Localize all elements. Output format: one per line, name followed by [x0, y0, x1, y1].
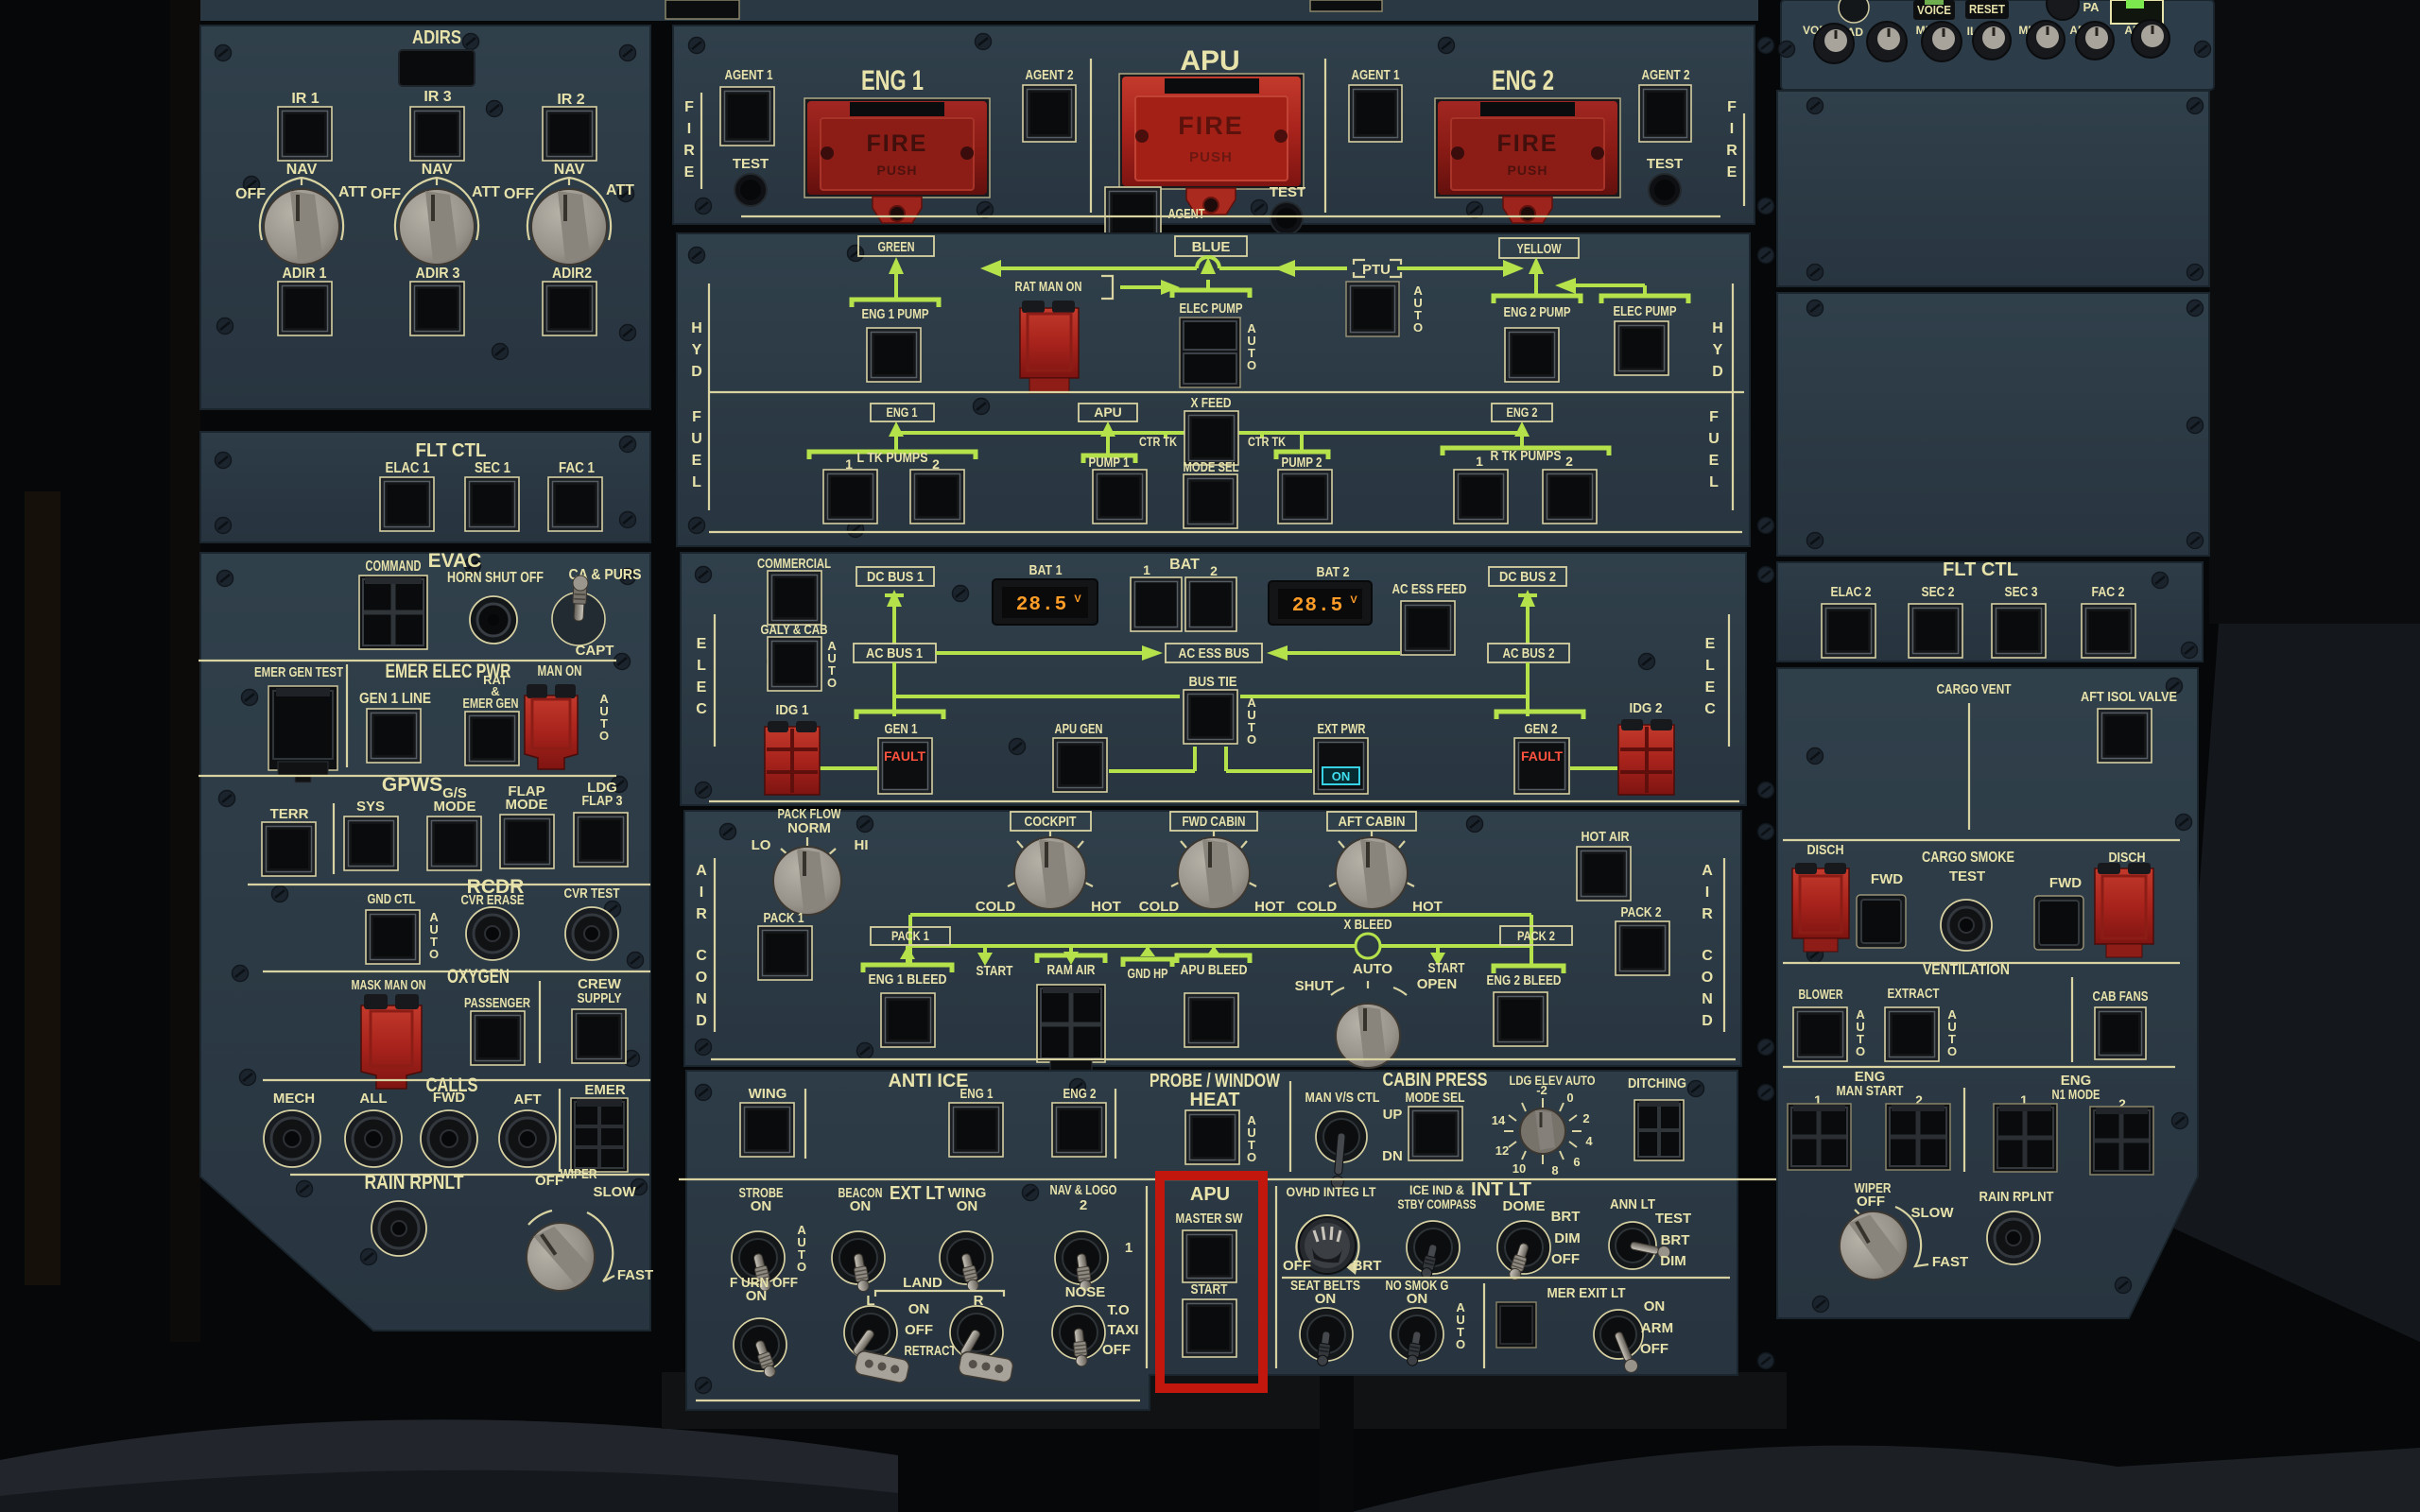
svg-text:ADIR 1: ADIR 1 [283, 266, 327, 282]
svg-text:EMER: EMER [584, 1082, 626, 1098]
svg-text:U: U [691, 431, 702, 447]
svg-text:OPEN: OPEN [1417, 976, 1458, 992]
svg-text:FAULT: FAULT [1521, 748, 1564, 764]
svg-text:L: L [697, 658, 706, 674]
svg-text:FWD: FWD [433, 1090, 465, 1106]
svg-text:IDG 2: IDG 2 [1630, 700, 1663, 716]
svg-text:V: V [1350, 594, 1357, 606]
svg-text:OFF: OFF [535, 1173, 563, 1189]
svg-text:STBY COMPASS: STBY COMPASS [1398, 1196, 1477, 1211]
svg-text:IR 3: IR 3 [423, 89, 451, 105]
svg-text:OFF: OFF [371, 186, 401, 202]
svg-text:NAV & LOGO: NAV & LOGO [1050, 1182, 1117, 1198]
svg-text:PUMP 1: PUMP 1 [1089, 455, 1130, 471]
svg-text:MECH: MECH [273, 1091, 315, 1107]
svg-text:TEST: TEST [1270, 184, 1305, 200]
svg-text:PTU: PTU [1362, 262, 1391, 278]
svg-text:VENTILATION: VENTILATION [1923, 962, 2010, 978]
svg-text:START: START [1191, 1281, 1228, 1297]
svg-text:PUMP 2: PUMP 2 [1282, 455, 1322, 471]
svg-text:LO: LO [752, 837, 771, 853]
svg-text:AFT: AFT [513, 1091, 541, 1108]
svg-text:INT LT: INT LT [1471, 1179, 1531, 1200]
svg-text:DISCH: DISCH [1807, 842, 1844, 858]
svg-text:CAB FANS: CAB FANS [2093, 988, 2149, 1005]
svg-text:FLT CTL: FLT CTL [1943, 559, 2018, 580]
svg-text:LAND: LAND [903, 1275, 942, 1291]
svg-text:C: C [1702, 948, 1713, 964]
svg-text:BAT 1: BAT 1 [1029, 562, 1063, 578]
svg-text:OFF: OFF [235, 186, 266, 202]
svg-text:HORN SHUT OFF: HORN SHUT OFF [447, 570, 544, 586]
svg-text:ADIRS: ADIRS [412, 27, 461, 48]
svg-text:ENG 2 PUMP: ENG 2 PUMP [1504, 304, 1571, 320]
svg-text:NAV: NAV [422, 162, 453, 178]
svg-text:RAT MAN ON: RAT MAN ON [1015, 279, 1082, 295]
svg-text:COMMAND: COMMAND [366, 558, 422, 575]
svg-text:OFF: OFF [1283, 1258, 1311, 1274]
svg-text:DITCHING: DITCHING [1628, 1075, 1686, 1091]
svg-text:ENG 1: ENG 1 [960, 1086, 994, 1102]
svg-text:ATT: ATT [338, 184, 367, 200]
svg-text:AGENT 2: AGENT 2 [1026, 67, 1074, 83]
svg-text:ELAC 1: ELAC 1 [386, 460, 430, 476]
svg-text:IR 2: IR 2 [557, 92, 584, 108]
svg-text:GND CTL: GND CTL [368, 891, 416, 907]
svg-text:CARGO VENT: CARGO VENT [1937, 681, 2012, 697]
svg-text:1: 1 [1143, 562, 1150, 577]
svg-text:F: F [1709, 409, 1719, 425]
svg-text:ADIR2: ADIR2 [552, 266, 592, 282]
svg-text:L: L [1705, 658, 1715, 674]
svg-text:NAV: NAV [286, 162, 318, 178]
svg-text:R: R [1726, 143, 1737, 159]
svg-text:E: E [1705, 679, 1716, 696]
svg-text:SYS: SYS [356, 799, 385, 815]
svg-text:TAXI: TAXI [1107, 1322, 1138, 1338]
svg-text:1: 1 [1476, 454, 1483, 469]
svg-text:START: START [1428, 960, 1465, 976]
svg-text:H: H [691, 320, 702, 336]
svg-text:MODE: MODE [434, 799, 476, 815]
svg-text:HOT AIR: HOT AIR [1582, 829, 1630, 845]
svg-text:-2: -2 [1536, 1083, 1547, 1097]
svg-text:GEN 1: GEN 1 [885, 721, 918, 737]
svg-text:YELLOW: YELLOW [1517, 241, 1563, 257]
svg-text:AFT ISOL VALVE: AFT ISOL VALVE [2081, 689, 2177, 705]
svg-text:RETRACT: RETRACT [905, 1343, 957, 1359]
svg-text:OXYGEN: OXYGEN [447, 966, 510, 988]
svg-text:ON: ON [850, 1198, 872, 1214]
svg-text:COMMERCIAL: COMMERCIAL [757, 556, 831, 572]
svg-text:RAIN RPNLT: RAIN RPNLT [365, 1172, 464, 1194]
svg-text:AC ESS FEED: AC ESS FEED [1392, 581, 1467, 597]
svg-text:SEC 3: SEC 3 [2005, 584, 2038, 600]
svg-text:GREEN: GREEN [878, 239, 915, 255]
svg-text:U: U [1708, 431, 1720, 447]
svg-text:I: I [687, 121, 691, 137]
svg-text:BRT: BRT [1353, 1258, 1382, 1274]
svg-text:PASSENGER: PASSENGER [464, 995, 530, 1011]
svg-text:ALL: ALL [359, 1091, 387, 1107]
svg-text:DIM: DIM [1660, 1253, 1686, 1269]
svg-text:PA: PA [2083, 0, 2100, 14]
svg-text:ADIR 3: ADIR 3 [416, 266, 460, 282]
svg-text:AC BUS 1: AC BUS 1 [866, 645, 923, 661]
svg-text:NAV: NAV [554, 162, 585, 178]
svg-text:RAM AIR: RAM AIR [1047, 962, 1096, 978]
svg-text:BAT 2: BAT 2 [1317, 564, 1350, 580]
svg-text:ENG 2: ENG 2 [1063, 1086, 1097, 1102]
svg-text:L TK PUMPS: L TK PUMPS [857, 450, 928, 466]
svg-text:ENG 2: ENG 2 [1492, 65, 1554, 96]
svg-text:AGENT 1: AGENT 1 [725, 67, 773, 83]
svg-text:AGENT 1: AGENT 1 [1352, 67, 1400, 83]
svg-text:FAST: FAST [1932, 1254, 1968, 1270]
svg-text:F: F [692, 409, 701, 425]
svg-text:MER EXIT LT: MER EXIT LT [1547, 1285, 1626, 1301]
svg-text:BLUE: BLUE [1192, 239, 1231, 255]
svg-text:HOT: HOT [1091, 899, 1121, 915]
svg-text:L: L [1709, 474, 1719, 490]
svg-text:AUTO: AUTO [1353, 961, 1393, 977]
svg-text:FIRE: FIRE [1178, 112, 1244, 140]
svg-text:EXT LT: EXT LT [890, 1183, 944, 1204]
svg-text:FAULT: FAULT [884, 748, 926, 764]
svg-text:GEN 2: GEN 2 [1525, 721, 1558, 737]
svg-text:ON: ON [751, 1198, 772, 1214]
svg-text:CAPT: CAPT [576, 643, 614, 659]
svg-text:SHUT: SHUT [1295, 978, 1334, 994]
svg-text:FAST: FAST [617, 1267, 653, 1283]
svg-text:APU: APU [1190, 1184, 1230, 1205]
svg-text:H: H [1712, 320, 1723, 336]
svg-text:PACK 1: PACK 1 [764, 910, 804, 926]
svg-text:OFF: OFF [1102, 1342, 1131, 1358]
svg-text:TEST: TEST [1655, 1211, 1691, 1227]
svg-text:HI: HI [855, 837, 869, 853]
svg-text:E: E [1705, 636, 1716, 652]
svg-text:FWD: FWD [1871, 871, 1903, 887]
svg-text:PACK 2: PACK 2 [1621, 904, 1662, 920]
svg-text:F: F [1727, 99, 1737, 115]
svg-text:VOICE: VOICE [1917, 3, 1951, 17]
svg-text:C: C [696, 948, 707, 964]
svg-text:ELEC PUMP: ELEC PUMP [1180, 301, 1243, 317]
svg-text:EMER GEN: EMER GEN [463, 696, 519, 712]
svg-text:R: R [683, 143, 695, 159]
svg-text:E: E [1709, 453, 1720, 469]
svg-text:ENG 2: ENG 2 [1507, 404, 1538, 420]
svg-text:HEAT: HEAT [1190, 1090, 1240, 1110]
svg-text:CTR TK: CTR TK [1248, 434, 1286, 449]
svg-text:C: C [1704, 701, 1716, 717]
svg-text:R: R [696, 906, 707, 922]
svg-text:12: 12 [1495, 1143, 1509, 1158]
svg-text:HOT: HOT [1412, 899, 1443, 915]
svg-text:I: I [1705, 885, 1709, 901]
svg-text:AC ESS BUS: AC ESS BUS [1179, 645, 1250, 661]
svg-text:ENG 2 BLEED: ENG 2 BLEED [1487, 972, 1562, 988]
svg-text:ATT: ATT [606, 182, 634, 198]
svg-text:V: V [1074, 593, 1081, 605]
svg-text:D: D [1712, 364, 1723, 380]
svg-text:D: D [696, 1013, 707, 1029]
svg-text:DN: DN [1382, 1148, 1403, 1164]
svg-text:BUS TIE: BUS TIE [1189, 674, 1237, 690]
svg-text:ICE IND &: ICE IND & [1409, 1182, 1464, 1197]
svg-text:PACK 2: PACK 2 [1517, 928, 1555, 943]
svg-text:FLAP 3: FLAP 3 [582, 793, 623, 809]
svg-text:EXTRACT: EXTRACT [1888, 986, 1940, 1002]
svg-text:ON: ON [908, 1301, 930, 1317]
svg-text:OFF: OFF [1857, 1194, 1885, 1210]
svg-text:X FEED: X FEED [1191, 395, 1232, 411]
svg-text:FWD CABIN: FWD CABIN [1183, 814, 1246, 830]
svg-text:28.5: 28.5 [1016, 594, 1067, 616]
svg-text:SLOW: SLOW [1911, 1205, 1955, 1221]
svg-text:AC BUS 2: AC BUS 2 [1503, 645, 1555, 661]
svg-text:D: D [691, 364, 702, 380]
svg-text:RESET: RESET [1969, 2, 2005, 16]
svg-text:BAT: BAT [1169, 557, 1200, 573]
svg-text:CVR ERASE: CVR ERASE [461, 892, 525, 908]
svg-text:RAIN RPLNT: RAIN RPLNT [1979, 1189, 2054, 1205]
svg-text:ON: ON [1315, 1291, 1337, 1307]
svg-text:ON: ON [1644, 1298, 1666, 1314]
svg-text:N1 MODE: N1 MODE [2052, 1087, 2100, 1103]
svg-text:FAC 2: FAC 2 [2092, 584, 2125, 600]
svg-text:BRT: BRT [1551, 1209, 1581, 1225]
svg-text:COLD: COLD [1297, 899, 1338, 915]
svg-text:MASK MAN ON: MASK MAN ON [352, 977, 426, 993]
svg-text:TERR: TERR [270, 806, 309, 822]
svg-text:MAN START: MAN START [1837, 1083, 1904, 1099]
svg-text:E: E [684, 164, 695, 180]
svg-text:COLD: COLD [976, 899, 1016, 915]
svg-text:SLOW: SLOW [594, 1184, 637, 1200]
svg-text:MAN V/S CTL: MAN V/S CTL [1305, 1090, 1380, 1106]
svg-text:DC BUS 1: DC BUS 1 [867, 569, 924, 585]
svg-text:EXT PWR: EXT PWR [1318, 721, 1366, 737]
svg-text:NOSE: NOSE [1065, 1284, 1106, 1300]
svg-text:ON: ON [746, 1288, 768, 1304]
svg-text:APU: APU [1094, 404, 1122, 420]
svg-text:FWD: FWD [2049, 875, 2082, 891]
svg-text:0: 0 [1566, 1091, 1573, 1105]
svg-text:E: E [1727, 164, 1737, 180]
svg-text:EMER GEN TEST: EMER GEN TEST [254, 664, 343, 680]
svg-text:4: 4 [1585, 1134, 1593, 1148]
svg-text:HOT: HOT [1254, 899, 1285, 915]
svg-text:MODE: MODE [506, 797, 548, 813]
svg-text:DIM: DIM [1554, 1230, 1581, 1246]
svg-text:CVR TEST: CVR TEST [564, 885, 620, 902]
svg-text:6: 6 [1573, 1155, 1580, 1169]
svg-text:ANTI ICE: ANTI ICE [889, 1071, 969, 1091]
svg-text:Y: Y [692, 342, 702, 358]
svg-text:1: 1 [1125, 1240, 1132, 1256]
svg-text:ELEC PUMP: ELEC PUMP [1614, 303, 1677, 319]
svg-text:MODE SEL: MODE SEL [1406, 1090, 1465, 1106]
svg-text:UP: UP [1383, 1107, 1403, 1123]
svg-text:E: E [697, 679, 707, 696]
svg-text:X BLEED: X BLEED [1344, 917, 1392, 933]
svg-text:2: 2 [1080, 1197, 1087, 1213]
svg-text:10: 10 [1512, 1161, 1526, 1176]
svg-text:TEST: TEST [1949, 868, 1985, 885]
svg-text:2: 2 [1565, 454, 1573, 469]
svg-text:ENG 1 BLEED: ENG 1 BLEED [869, 971, 947, 988]
svg-text:O: O [1702, 970, 1713, 986]
svg-text:BRT: BRT [1661, 1232, 1690, 1248]
svg-text:A: A [696, 863, 707, 879]
svg-text:CTR TK: CTR TK [1139, 434, 1177, 449]
svg-text:Y: Y [1713, 342, 1723, 358]
svg-text:CARGO SMOKE: CARGO SMOKE [1922, 850, 2014, 866]
svg-text:AFT CABIN: AFT CABIN [1339, 814, 1406, 830]
svg-text:OFF: OFF [504, 186, 534, 202]
svg-text:OFF: OFF [905, 1322, 933, 1338]
svg-text:ARM: ARM [1641, 1320, 1673, 1336]
svg-text:SEC 1: SEC 1 [475, 460, 510, 476]
svg-text:EVAC: EVAC [428, 550, 482, 572]
svg-text:PROBE / WINDOW: PROBE / WINDOW [1149, 1071, 1280, 1091]
svg-text:NORM: NORM [787, 820, 831, 836]
svg-text:GPWS: GPWS [382, 774, 442, 796]
svg-text:FAC 1: FAC 1 [559, 460, 595, 476]
svg-text:DC BUS 2: DC BUS 2 [1499, 569, 1556, 585]
svg-text:LDG ELEV AUTO: LDG ELEV AUTO [1510, 1073, 1596, 1088]
svg-text:R: R [1702, 906, 1713, 922]
svg-text:PACK 1: PACK 1 [891, 928, 929, 943]
svg-text:MAN ON: MAN ON [538, 663, 582, 679]
svg-text:OFF: OFF [1551, 1251, 1580, 1267]
svg-text:ENG 1: ENG 1 [887, 404, 918, 420]
svg-text:AGENT: AGENT [1168, 206, 1205, 222]
svg-text:O: O [696, 970, 707, 986]
svg-text:GND HP: GND HP [1128, 966, 1168, 982]
svg-text:8: 8 [1551, 1163, 1558, 1177]
svg-text:PUSH: PUSH [1189, 149, 1233, 165]
svg-text:ON: ON [957, 1198, 978, 1214]
svg-text:ON: ON [1332, 769, 1351, 783]
svg-text:I: I [1730, 121, 1734, 137]
svg-text:GEN 1 LINE: GEN 1 LINE [359, 691, 431, 707]
svg-text:2: 2 [1210, 563, 1218, 578]
svg-text:APU: APU [1180, 45, 1239, 77]
svg-text:I: I [700, 885, 703, 901]
svg-text:2: 2 [1582, 1111, 1589, 1125]
svg-text:ELAC 2: ELAC 2 [1831, 584, 1872, 600]
svg-text:AGENT 2: AGENT 2 [1642, 67, 1690, 83]
svg-text:DOME: DOME [1503, 1198, 1546, 1214]
svg-text:L: L [692, 474, 701, 490]
svg-text:COLD: COLD [1139, 899, 1180, 915]
svg-text:CABIN PRESS: CABIN PRESS [1383, 1070, 1488, 1091]
svg-text:START: START [977, 963, 1013, 979]
svg-text:ATT: ATT [472, 184, 500, 200]
svg-text:IDG 1: IDG 1 [776, 702, 809, 718]
svg-text:ENG 1: ENG 1 [861, 65, 924, 96]
svg-text:ON: ON [1407, 1291, 1428, 1307]
svg-text:GALY & CAB: GALY & CAB [761, 622, 828, 638]
svg-text:IR 1: IR 1 [291, 91, 319, 107]
svg-text:F: F [684, 99, 694, 115]
svg-text:APU GEN: APU GEN [1055, 721, 1103, 737]
svg-text:28.5: 28.5 [1292, 595, 1343, 617]
svg-text:D: D [1702, 1013, 1713, 1029]
svg-text:14: 14 [1492, 1113, 1506, 1127]
svg-text:TEST: TEST [1647, 156, 1683, 172]
svg-text:APU BLEED: APU BLEED [1181, 962, 1248, 978]
svg-text:OVHD INTEG LT: OVHD INTEG LT [1287, 1184, 1376, 1199]
svg-text:MODE SEL: MODE SEL [1184, 459, 1239, 475]
svg-text:MASTER SW: MASTER SW [1176, 1211, 1244, 1227]
svg-text:T.O: T.O [1107, 1302, 1130, 1318]
svg-text:N: N [1702, 991, 1713, 1007]
svg-text:SEC 2: SEC 2 [1922, 584, 1955, 600]
svg-text:A: A [1702, 863, 1713, 879]
svg-text:C: C [696, 701, 707, 717]
svg-text:ANN LT: ANN LT [1610, 1196, 1655, 1212]
svg-text:R TK PUMPS: R TK PUMPS [1491, 448, 1562, 464]
svg-text:WIPER: WIPER [561, 1166, 597, 1182]
svg-text:N: N [696, 991, 707, 1007]
svg-text:SUPPLY: SUPPLY [578, 990, 622, 1006]
svg-text:COCKPIT: COCKPIT [1025, 814, 1077, 830]
svg-text:BLOWER: BLOWER [1799, 987, 1843, 1003]
svg-text:E: E [692, 453, 702, 469]
svg-text:WING: WING [749, 1086, 787, 1102]
svg-text:OFF: OFF [1640, 1341, 1668, 1357]
svg-text:FLT CTL: FLT CTL [416, 440, 487, 461]
svg-text:E: E [697, 636, 707, 652]
svg-text:TEST: TEST [733, 156, 769, 172]
svg-text:ENG 1 PUMP: ENG 1 PUMP [862, 306, 929, 322]
